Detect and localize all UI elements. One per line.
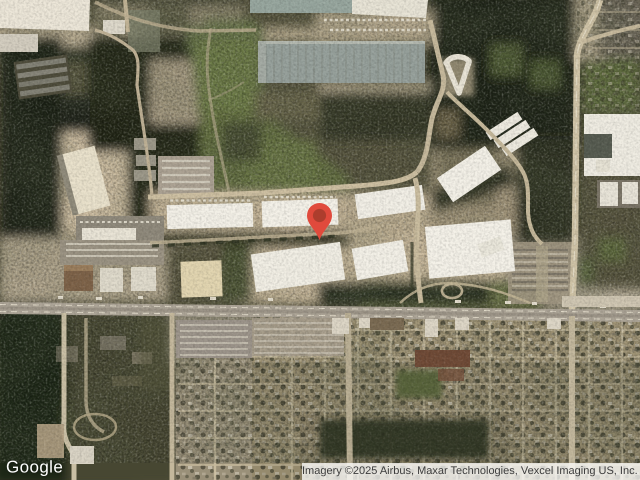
svg-text:Google: Google (6, 458, 63, 477)
